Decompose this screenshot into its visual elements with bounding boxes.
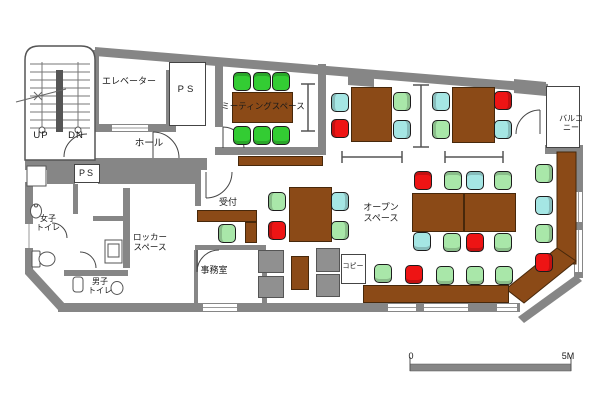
reception-counter-h — [197, 210, 257, 222]
chair — [414, 171, 432, 190]
open-space-table-left — [412, 193, 464, 232]
meeting-shelf — [238, 156, 323, 166]
chair — [272, 126, 290, 145]
label-scale-zero: 0 — [408, 351, 413, 362]
mens-washbasin — [111, 282, 123, 295]
label-ps-upper: PS — [178, 84, 197, 95]
corridor-door-arc — [206, 172, 232, 198]
chair — [444, 171, 462, 190]
reception-counter-v — [245, 222, 257, 243]
chair — [443, 233, 461, 252]
chair — [432, 92, 450, 111]
chair — [272, 72, 290, 91]
chair — [253, 126, 271, 145]
chair — [331, 93, 349, 112]
chair — [268, 192, 286, 211]
chair — [432, 120, 450, 139]
staircase — [16, 46, 95, 160]
center-table — [289, 187, 332, 242]
chair — [268, 221, 286, 240]
chair — [218, 224, 236, 243]
floor-plan: エレベーターPSホールUPDNPSミーティングスペースバルコニー女子 トイレ男子… — [0, 0, 600, 400]
open-space-table-right — [464, 193, 516, 232]
chair — [494, 171, 512, 190]
label-stairs-down: DN — [68, 130, 84, 141]
label-copy: コピー — [343, 263, 364, 271]
chair — [494, 233, 512, 252]
label-reception: 受付 — [219, 197, 237, 208]
label-mens-toilet: 男子 トイレ — [88, 277, 112, 296]
label-elevator: エレベーター — [102, 76, 156, 87]
chair — [413, 232, 431, 251]
storage-cabinet — [316, 248, 340, 272]
chair — [494, 120, 512, 139]
chair — [253, 72, 271, 91]
chair — [393, 120, 411, 139]
label-ps-lower: PS — [79, 168, 95, 179]
chair — [495, 266, 513, 285]
chair — [405, 265, 423, 284]
chair — [331, 119, 349, 138]
scale-bar — [410, 357, 571, 371]
sink-counter — [27, 166, 46, 186]
bottom-counter — [363, 285, 509, 303]
chair — [535, 196, 553, 215]
chair — [331, 221, 349, 240]
chair — [494, 91, 512, 110]
toilet-bowl — [39, 252, 55, 266]
chair — [466, 266, 484, 285]
storage-cabinet — [258, 276, 284, 298]
chair — [393, 92, 411, 111]
label-locker-space: ロッカー スペース — [133, 232, 167, 252]
label-office-room: 事務室 — [200, 265, 227, 276]
chair — [233, 72, 251, 91]
chair — [535, 224, 553, 243]
label-womens-toilet: 女子 トイレ — [36, 214, 60, 233]
label-meeting-space: ミーティングスペース — [221, 101, 304, 111]
table-a — [351, 87, 392, 142]
storage-cabinet — [316, 274, 340, 297]
label-open-space: オープン スペース — [363, 202, 398, 223]
chair — [466, 233, 484, 252]
label-hall: ホール — [135, 138, 164, 149]
chair — [374, 264, 392, 283]
label-scale-5m: 5M — [562, 351, 575, 362]
chair — [535, 164, 553, 183]
label-balcony: バルコニー — [557, 114, 586, 133]
small-cabinet — [291, 256, 309, 290]
chair — [233, 126, 251, 145]
chair — [331, 192, 349, 211]
chair — [535, 253, 553, 272]
mens-toilet-door-arc — [80, 252, 96, 268]
chair — [436, 266, 454, 285]
table-b — [452, 87, 495, 143]
stair-rail — [56, 70, 63, 132]
storage-cabinet — [258, 250, 284, 273]
urinal — [73, 277, 83, 292]
balcony-door-arc — [516, 110, 540, 134]
chair — [466, 171, 484, 190]
label-stairs-up: UP — [33, 130, 48, 141]
